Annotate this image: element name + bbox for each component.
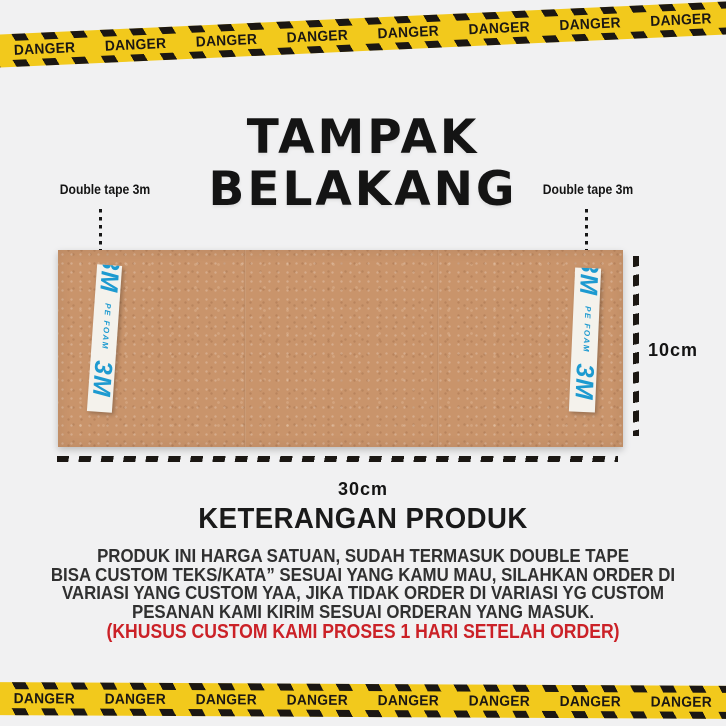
height-dimension-label: 10cm [648,340,698,361]
dotted-arrow-right-icon [585,209,588,256]
danger-label: DANGER [650,11,712,30]
danger-label: DANGER [469,693,530,709]
width-dimension-line [57,456,618,462]
danger-label: DANGER [378,693,439,709]
danger-label: DANGER [105,691,166,707]
danger-label: DANGER [560,694,621,710]
danger-label: DANGER [196,31,258,50]
danger-label: DANGER [14,691,75,707]
pe-foam-label: PE FOAM [100,303,112,350]
3m-logo: 3M [87,360,117,399]
danger-label: DANGER [105,35,167,54]
danger-label: DANGER [196,692,257,708]
danger-label: DANGER [651,694,712,710]
danger-label: DANGER [377,23,439,42]
description-heading: KETERANGAN PRODUK [18,503,708,536]
width-dimension-label: 30cm [0,479,726,500]
danger-label: DANGER [14,40,76,59]
double-tape-callout-left: Double tape 3m [51,182,159,197]
page-title-line1: TAMPAK [247,110,479,165]
danger-label: DANGER [468,19,530,38]
danger-tape-top: DANGERDANGERDANGERDANGERDANGERDANGERDANG… [0,1,726,68]
3m-logo: 3M [574,268,601,297]
height-dimension-line [633,256,639,436]
product-back-view-image: DANGERDANGERDANGERDANGERDANGERDANGERDANG… [0,0,726,726]
description-block: PRODUK INI HARGA SATUAN, SUDAH TERMASUK … [0,547,726,643]
description-note-red: (KHUSUS CUSTOM KAMI PROSES 1 HARI SETELA… [44,622,683,643]
board-crease [437,250,439,447]
danger-tape-bottom: DANGERDANGERDANGERDANGERDANGERDANGERDANG… [0,682,726,719]
page-title-line2: BELAKANG [209,162,518,217]
board-crease [244,250,246,447]
pe-foam-label: PE FOAM [87,269,91,316]
pe-foam-label: PE FOAM [569,273,570,320]
danger-label: DANGER [287,692,348,708]
pe-foam-label: PE FOAM [581,306,592,353]
product-board-back: 3M PE FOAM 3M PE FOAM 3M PE FOAM 3M PE F… [58,250,623,447]
double-tape-callout-right: Double tape 3m [534,182,642,197]
double-tape-strip-left: 3M PE FOAM 3M PE FOAM [87,264,122,412]
danger-label: DANGER [559,15,621,34]
3m-logo: 3M [569,363,599,401]
page-title: TAMPAK BELAKANG [0,112,726,216]
danger-label: DANGER [286,27,348,46]
description-line: PESANAN KAMI KIRIM SESUAI ORDERAN YANG M… [33,603,694,622]
3m-logo: 3M [94,264,122,294]
double-tape-strip-right: 3M PE FOAM 3M PE FOAM [569,268,601,413]
dotted-arrow-left-icon [99,209,102,256]
